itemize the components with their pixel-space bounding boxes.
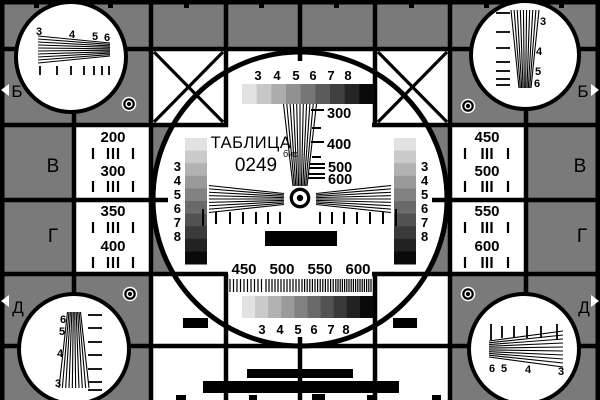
- frequency-label: 550: [307, 261, 332, 278]
- strip-label: 4: [174, 173, 182, 188]
- edge-letter: Д: [578, 298, 590, 317]
- card-number-suffix: бис: [283, 149, 298, 159]
- wedge-number: 5: [535, 66, 541, 78]
- panel-frequency: 500: [474, 163, 499, 180]
- wedge-number: 6: [104, 32, 110, 44]
- edge-letter: В: [47, 156, 60, 177]
- frequency-label: 600: [345, 261, 370, 278]
- test-card-graphics: [0, 0, 600, 400]
- grayscale-label: 3: [258, 322, 265, 337]
- panel-frequency: 550: [474, 203, 499, 220]
- panel-frequency: 300: [100, 163, 125, 180]
- test-card-art: 3 4 5 6 3 4 5 6 6 5 4 3 6 5 4 3 3 4 5 6 …: [0, 0, 600, 400]
- strip-label: 4: [421, 173, 429, 188]
- panel-frequency: 400: [100, 238, 125, 255]
- frequency-label: 600: [328, 172, 352, 188]
- strip-label: 5: [174, 187, 181, 202]
- grayscale-label: 6: [310, 322, 317, 337]
- wedge-number: 5: [59, 326, 65, 338]
- grayscale-bar-top: [242, 84, 375, 104]
- grayscale-label: 8: [342, 322, 349, 337]
- grayscale-bar-bottom: [242, 296, 374, 318]
- strip-label: 8: [421, 229, 428, 244]
- wedge-number: 6: [60, 314, 66, 326]
- wedge-number: 3: [558, 366, 564, 378]
- wedge-number: 4: [69, 29, 76, 41]
- wedge-number: 3: [540, 16, 546, 28]
- frequency-label: 400: [327, 137, 351, 153]
- grayscale-label: 6: [309, 68, 316, 83]
- panel-frequency: 600: [474, 238, 499, 255]
- edge-letter: Г: [48, 226, 58, 247]
- card-title: ТАБЛИЦА: [211, 134, 292, 152]
- strip-label: 3: [174, 159, 181, 174]
- grayscale-label: 8: [344, 68, 351, 83]
- frequency-label: 300: [327, 106, 351, 122]
- edge-letter: Б: [11, 82, 22, 101]
- grayscale-label: 4: [276, 322, 284, 337]
- wedge-number: 6: [489, 363, 495, 375]
- wedge-number: 3: [55, 378, 61, 390]
- edge-letter: Г: [577, 226, 587, 247]
- edge-letter: В: [574, 156, 587, 177]
- test-card: 3 4 5 6 3 4 5 6 6 5 4 3 6 5 4 3 3 4 5 6 …: [0, 0, 600, 400]
- wedge-number: 4: [536, 46, 543, 58]
- strip-label: 6: [421, 201, 428, 216]
- panel-frequency: 450: [474, 129, 499, 146]
- grayscale-label: 5: [292, 68, 299, 83]
- wedge-number: 5: [92, 31, 98, 43]
- wedge-number: 4: [525, 364, 532, 376]
- strip-label: 7: [421, 215, 428, 230]
- grayscale-label: 5: [294, 322, 301, 337]
- panel-frequency: 350: [100, 203, 125, 220]
- grayscale-label: 3: [254, 68, 261, 83]
- strip-label: 7: [174, 215, 181, 230]
- grayscale-label: 4: [273, 68, 281, 83]
- card-number: 0249: [235, 155, 277, 176]
- grayscale-label: 7: [327, 68, 334, 83]
- edge-letter: Д: [12, 298, 24, 317]
- panel-frequency: 200: [100, 129, 125, 146]
- strip-label: 5: [421, 187, 428, 202]
- strip-label: 8: [174, 229, 181, 244]
- frequency-label: 500: [269, 261, 294, 278]
- strip-label: 3: [421, 159, 428, 174]
- strip-label: 6: [174, 201, 181, 216]
- wedge-number: 3: [36, 26, 42, 38]
- grayscale-label: 7: [327, 322, 334, 337]
- frequency-label: 450: [231, 261, 256, 278]
- grayscale-strip-left: [185, 138, 207, 265]
- wedge-number: 6: [534, 78, 540, 90]
- grayscale-strip-right: [394, 138, 416, 265]
- edge-letter: Б: [577, 82, 588, 101]
- wedge-number: 5: [501, 363, 507, 375]
- wedge-number: 4: [57, 348, 64, 360]
